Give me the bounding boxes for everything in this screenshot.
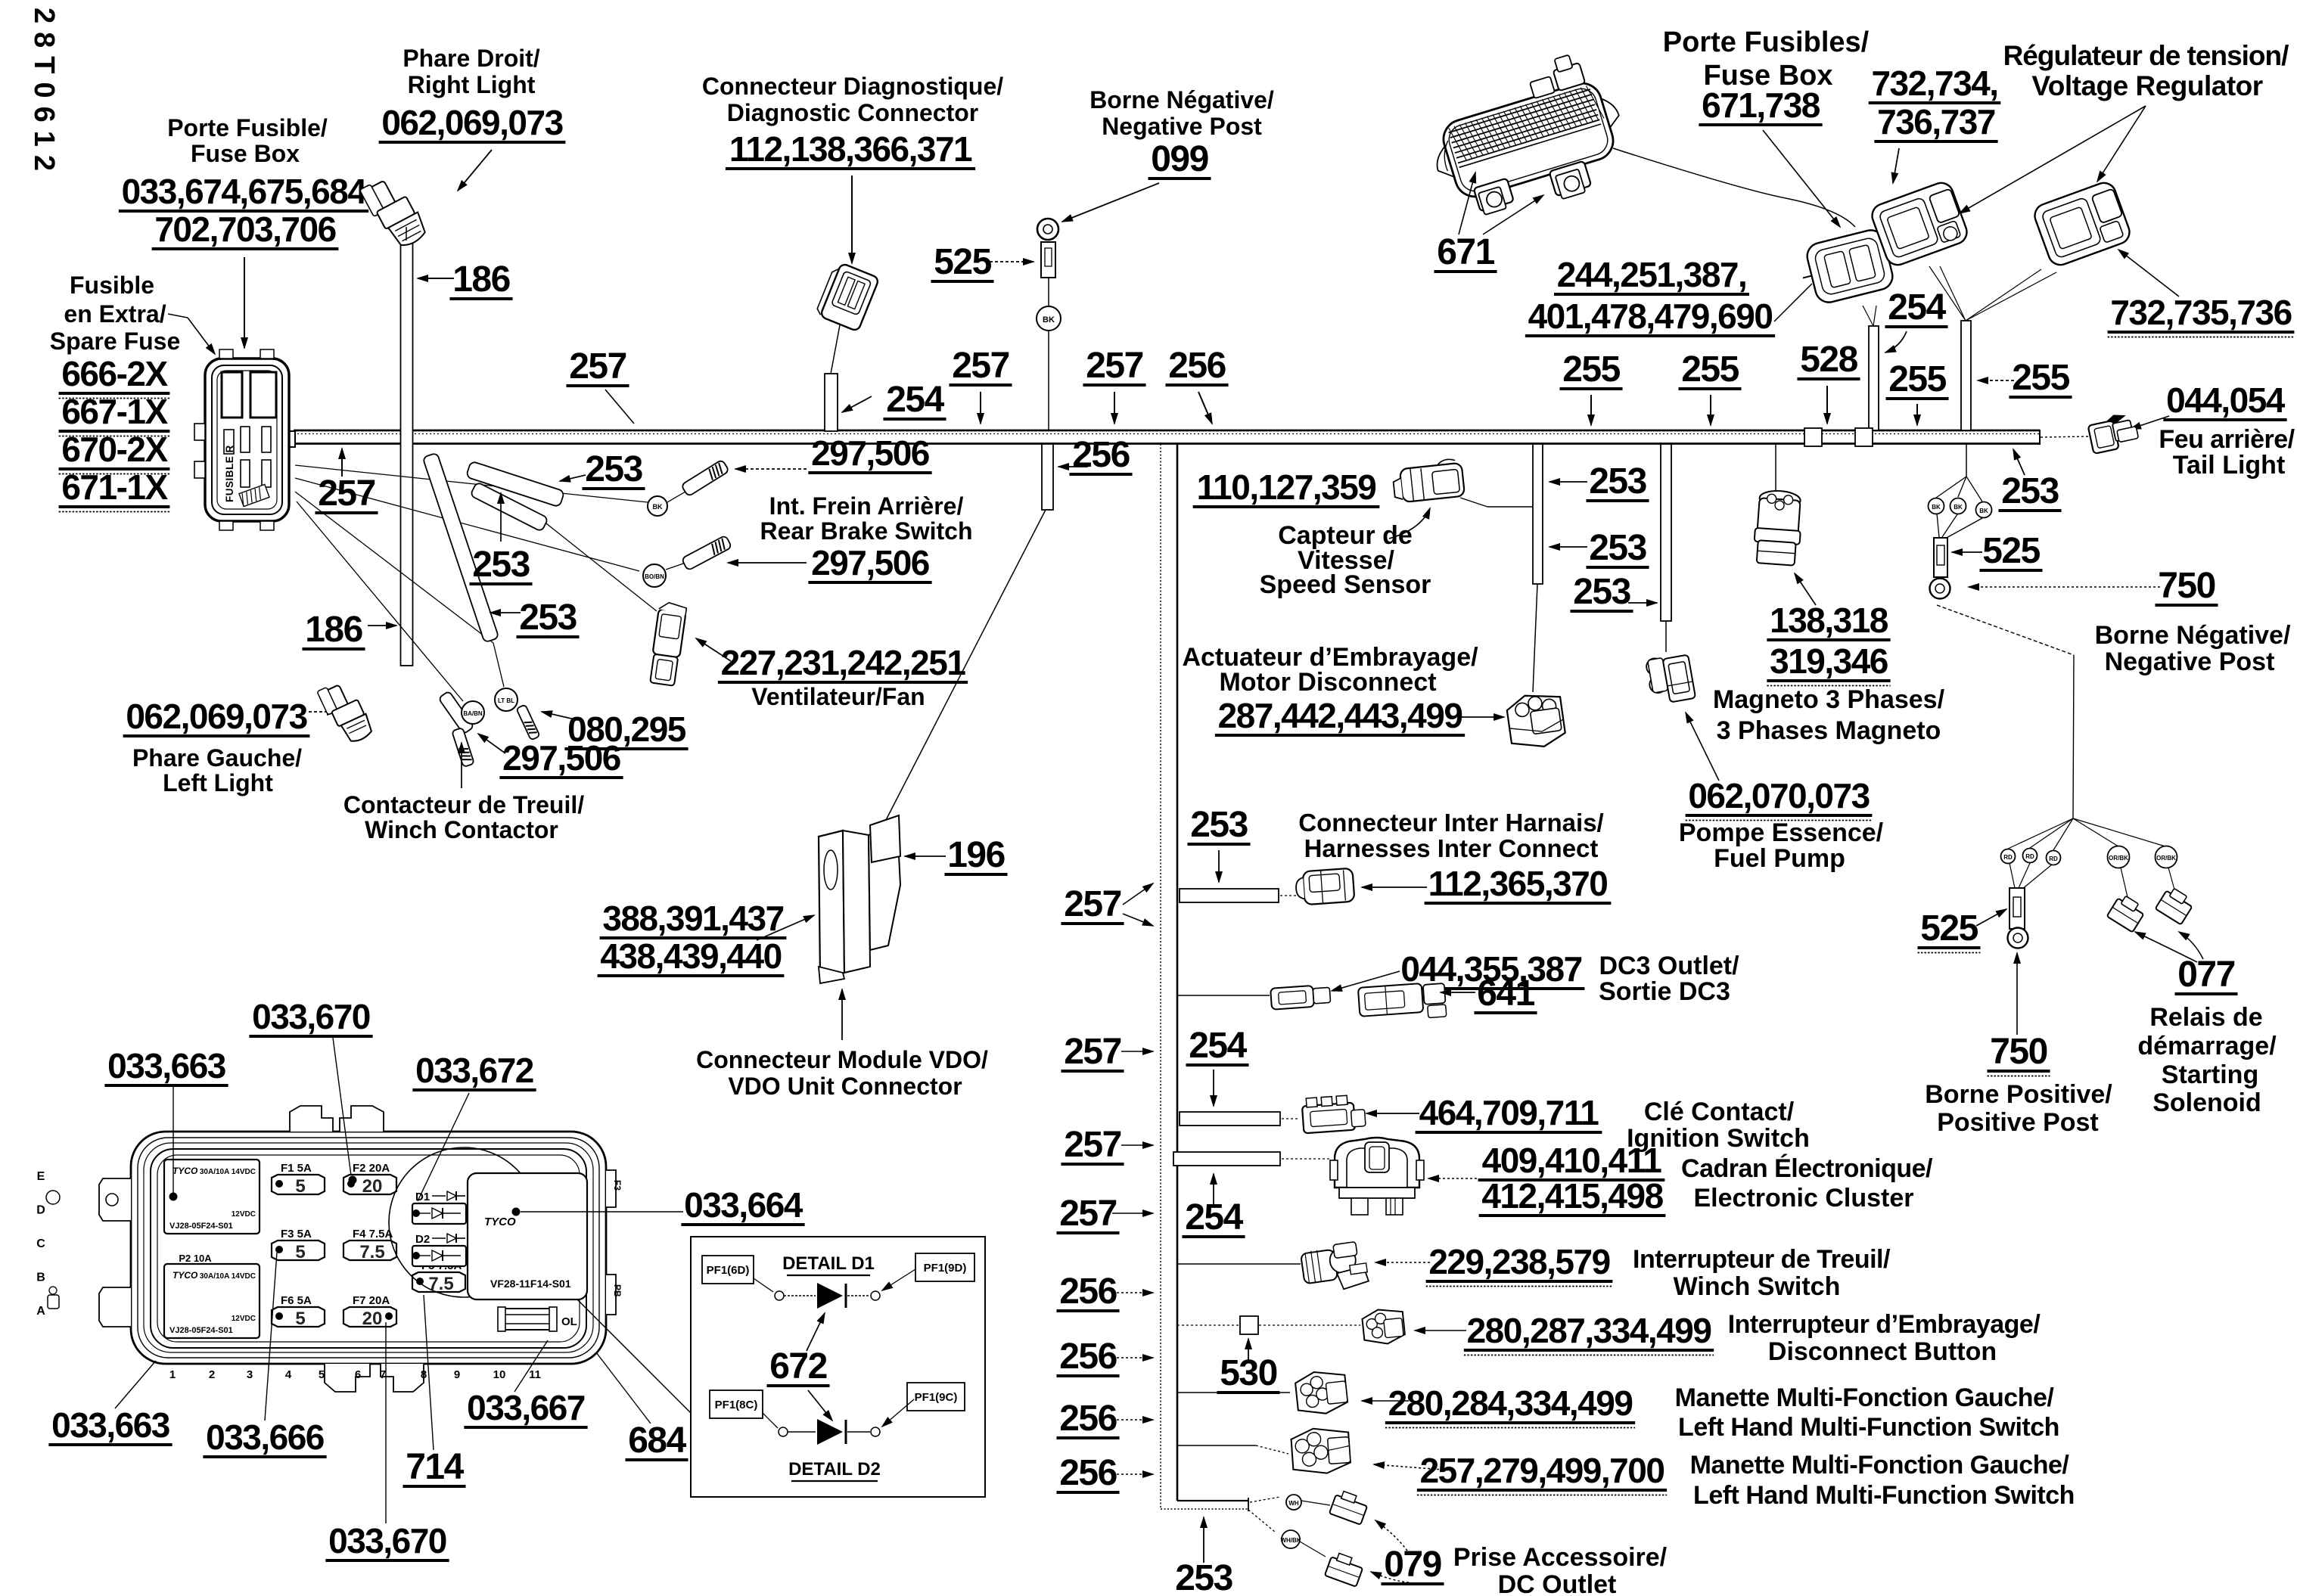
svg-text:BO/BN: BO/BN [645,573,664,580]
svg-text:VJ28-05F24-S01: VJ28-05F24-S01 [169,1326,233,1335]
svg-text:Ventilateur/Fan: Ventilateur/Fan [751,683,925,710]
svg-text:253: 253 [1190,805,1248,845]
svg-text:Clé Contact/: Clé Contact/ [1644,1098,1795,1126]
svg-text:D1: D1 [415,1191,430,1203]
svg-text:Régulateur de tension/: Régulateur de tension/ [2003,40,2289,71]
svg-text:254: 254 [886,380,944,420]
svg-text:229,238,579: 229,238,579 [1428,1242,1609,1281]
svg-text:641: 641 [1477,973,1534,1014]
svg-text:Manette Multi-Fonction Gauche/: Manette Multi-Fonction Gauche/ [1675,1383,2055,1412]
svg-text:033,666: 033,666 [206,1417,324,1457]
svg-text:Borne Négative/: Borne Négative/ [2095,621,2291,650]
svg-text:Manette Multi-Fonction Gauche/: Manette Multi-Fonction Gauche/ [1690,1451,2070,1480]
svg-text:033,663: 033,663 [51,1405,169,1445]
svg-text:253: 253 [472,545,530,585]
svg-text:VF28-11F14-S01: VF28-11F14-S01 [490,1278,571,1290]
svg-text:Borne Négative/: Borne Négative/ [1089,86,1274,113]
svg-text:297,506: 297,506 [502,738,620,778]
svg-text:OL: OL [561,1315,577,1328]
svg-text:Harnesses Inter Connect: Harnesses Inter Connect [1304,834,1599,862]
svg-text:7.5: 7.5 [428,1274,453,1294]
svg-text:671,738: 671,738 [1702,85,1820,125]
svg-text:Interrupteur de Treuil/: Interrupteur de Treuil/ [1633,1245,1891,1274]
svg-text:257: 257 [1059,1194,1117,1234]
svg-text:11: 11 [529,1368,541,1381]
svg-text:6: 6 [355,1368,361,1381]
svg-text:Negative Post: Negative Post [1102,113,1262,140]
svg-text:297,506: 297,506 [811,433,929,473]
svg-text:732,735,736: 732,735,736 [2110,293,2291,332]
svg-text:DC Outlet: DC Outlet [1498,1570,1617,1596]
svg-text:F6 5A: F6 5A [281,1294,312,1307]
svg-text:4: 4 [285,1368,292,1381]
svg-text:F7 20A: F7 20A [353,1294,390,1307]
svg-text:255: 255 [1681,349,1739,390]
svg-text:255: 255 [1562,349,1620,390]
svg-text:LT BL: LT BL [498,697,514,704]
svg-text:257: 257 [1064,1125,1121,1165]
svg-text:257: 257 [1064,1032,1121,1072]
svg-text:671-1X: 671-1X [61,467,168,507]
svg-text:Interrupteur d’Embrayage/: Interrupteur d’Embrayage/ [1728,1310,2041,1339]
svg-text:Left Hand Multi-Function Switc: Left Hand Multi-Function Switch [1693,1481,2075,1510]
svg-text:077: 077 [2177,955,2235,995]
svg-text:F2 20A: F2 20A [353,1162,390,1175]
svg-text:PF1(9D): PF1(9D) [924,1262,967,1275]
svg-text:9: 9 [454,1368,460,1381]
svg-text:DC3 Outlet/: DC3 Outlet/ [1599,952,1739,980]
svg-text:Speed Sensor: Speed Sensor [1260,570,1431,599]
svg-text:Phare Droit/: Phare Droit/ [403,45,539,72]
svg-text:F1 5A: F1 5A [281,1162,312,1175]
svg-text:TYCO: TYCO [173,1270,198,1281]
svg-text:B: B [36,1272,45,1284]
svg-text:253: 253 [585,449,642,489]
svg-text:412,415,498: 412,415,498 [1481,1176,1663,1216]
svg-text:Contacteur de Treuil/: Contacteur de Treuil/ [343,791,584,818]
svg-text:BK: BK [1954,504,1963,511]
svg-text:062,069,073: 062,069,073 [381,103,562,142]
svg-text:28T0612: 28T0612 [28,8,60,179]
svg-text:Negative Post: Negative Post [2105,647,2275,676]
svg-text:033,672: 033,672 [415,1051,533,1090]
svg-text:Connecteur Module VDO/: Connecteur Module VDO/ [696,1046,988,1073]
svg-text:F3 5A: F3 5A [281,1228,312,1240]
svg-text:PF1(8C): PF1(8C) [715,1399,758,1411]
svg-text:Motor Disconnect: Motor Disconnect [1219,668,1436,697]
svg-text:464,709,711: 464,709,711 [1419,1093,1599,1132]
svg-text:F3: F3 [612,1180,623,1191]
svg-text:667-1X: 667-1X [61,392,168,431]
svg-text:12VDC: 12VDC [232,1210,256,1219]
svg-text:750: 750 [2158,566,2215,606]
svg-text:D: D [36,1204,45,1217]
svg-text:186: 186 [452,259,510,300]
svg-text:099: 099 [1151,139,1208,179]
svg-text:BK: BK [1979,508,1988,514]
svg-text:257: 257 [1064,884,1121,924]
svg-text:Left Light: Left Light [163,769,273,796]
svg-text:525: 525 [934,242,991,282]
svg-text:253: 253 [1175,1558,1232,1596]
svg-text:297,506: 297,506 [811,543,929,582]
svg-text:OR/BK: OR/BK [2156,855,2176,862]
svg-text:257: 257 [1086,346,1143,386]
svg-text:280,287,334,499: 280,287,334,499 [1467,1311,1711,1350]
svg-text:Voltage Regulator: Voltage Regulator [2031,70,2262,101]
svg-text:5: 5 [295,1176,305,1197]
svg-text:079: 079 [1384,1545,1441,1585]
svg-text:DETAIL D2: DETAIL D2 [788,1459,881,1480]
svg-text:750: 750 [1990,1032,2047,1072]
svg-text:FUSIBLE R: FUSIBLE R [224,445,235,502]
svg-text:Solenoid: Solenoid [2152,1088,2261,1117]
svg-text:5: 5 [295,1309,305,1329]
svg-text:démarrage/: démarrage/ [2137,1032,2277,1060]
svg-text:PF1(6D): PF1(6D) [707,1264,750,1277]
svg-text:TYCO: TYCO [484,1216,516,1228]
svg-text:Magneto 3 Phases/: Magneto 3 Phases/ [1713,685,1945,714]
svg-text:en Extra/: en Extra/ [64,300,166,328]
svg-text:227,231,242,251: 227,231,242,251 [721,643,966,682]
svg-text:255: 255 [1888,359,1946,399]
svg-text:PF1(9C): PF1(9C) [915,1391,958,1404]
svg-text:Pompe Essence/: Pompe Essence/ [1679,818,1884,847]
svg-text:255: 255 [2012,358,2069,398]
svg-text:VJ28-05F24-S01: VJ28-05F24-S01 [169,1222,233,1231]
svg-text:525: 525 [1982,531,2040,571]
svg-text:20: 20 [362,1176,383,1197]
svg-text:525: 525 [1920,908,1978,949]
svg-text:044,054: 044,054 [2166,380,2286,420]
svg-text:033,664: 033,664 [684,1185,803,1225]
svg-text:Electronic Cluster: Electronic Cluster [1694,1184,1914,1213]
svg-text:BA/BN: BA/BN [463,710,483,717]
svg-text:736,737: 736,737 [1877,102,1995,141]
svg-text:VDO Unit Connector: VDO Unit Connector [728,1073,962,1100]
svg-text:BK: BK [653,503,663,511]
svg-text:257,279,499,700: 257,279,499,700 [1420,1451,1664,1490]
svg-text:438,439,440: 438,439,440 [600,936,781,976]
svg-text:Winch Contactor: Winch Contactor [365,816,558,843]
svg-text:256: 256 [1059,1453,1117,1493]
svg-text:254: 254 [1888,287,1946,328]
svg-text:Fuel Pump: Fuel Pump [1714,844,1845,873]
svg-text:280,284,334,499: 280,284,334,499 [1388,1383,1633,1423]
svg-text:714: 714 [406,1447,464,1487]
svg-text:Disconnect Button: Disconnect Button [1768,1337,1997,1366]
svg-text:DETAIL D1: DETAIL D1 [782,1253,875,1274]
svg-text:7: 7 [380,1368,386,1381]
svg-text:702,703,706: 702,703,706 [154,210,335,249]
svg-text:3 Phases Magneto: 3 Phases Magneto [1717,716,1941,745]
svg-text:033,670: 033,670 [328,1521,446,1560]
svg-text:Porte Fusible/: Porte Fusible/ [167,114,328,141]
svg-text:Left Hand Multi-Function Switc: Left Hand Multi-Function Switch [1678,1413,2059,1442]
svg-text:A: A [36,1305,45,1318]
svg-text:2: 2 [209,1368,215,1381]
svg-text:033,667: 033,667 [467,1388,585,1427]
svg-text:062,069,073: 062,069,073 [126,697,306,736]
svg-text:Fuse Box: Fuse Box [191,140,300,167]
svg-text:256: 256 [1059,1272,1117,1312]
svg-text:256: 256 [1072,435,1130,475]
svg-text:253: 253 [1589,528,1646,568]
svg-text:112,365,370: 112,365,370 [1428,864,1608,903]
svg-text:033,670: 033,670 [252,997,370,1036]
svg-text:033,674,675,684: 033,674,675,684 [122,172,368,211]
svg-text:257: 257 [318,474,375,514]
svg-text:Sortie DC3: Sortie DC3 [1599,977,1730,1006]
svg-text:Tail Light: Tail Light [2173,451,2286,480]
svg-text:Cadran Électronique/: Cadran Électronique/ [1681,1154,1933,1183]
svg-text:E: E [37,1170,45,1183]
svg-text:253: 253 [1573,572,1630,612]
svg-text:RD: RD [2049,855,2058,862]
svg-text:Right Light: Right Light [408,71,536,98]
svg-text:666-2X: 666-2X [61,354,168,393]
svg-text:388,391,437: 388,391,437 [602,899,783,938]
svg-text:110,127,359: 110,127,359 [1197,467,1376,507]
svg-text:PB: PB [612,1284,623,1297]
svg-text:BK: BK [1932,504,1941,511]
svg-text:20: 20 [362,1309,383,1329]
svg-text:10: 10 [493,1368,506,1381]
svg-text:30A/10A 14VDC: 30A/10A 14VDC [200,1272,256,1281]
svg-text:401,478,479,690: 401,478,479,690 [1528,297,1773,336]
svg-text:253: 253 [2001,471,2059,511]
svg-text:Phare Gauche/: Phare Gauche/ [132,744,302,772]
svg-text:196: 196 [947,835,1005,875]
svg-text:257: 257 [569,346,626,387]
svg-text:Positive Post: Positive Post [1937,1108,2099,1137]
svg-text:Starting: Starting [2162,1060,2258,1089]
svg-text:Rear Brake Switch: Rear Brake Switch [760,517,972,545]
svg-text:253: 253 [1589,461,1646,501]
svg-text:RD: RD [2025,853,2034,860]
svg-text:8: 8 [421,1368,427,1381]
svg-text:528: 528 [1800,340,1857,380]
svg-text:256: 256 [1059,1337,1117,1377]
svg-text:D2: D2 [415,1233,430,1246]
svg-text:BK: BK [1043,315,1055,324]
svg-text:5: 5 [319,1368,325,1381]
svg-text:12VDC: 12VDC [232,1315,256,1323]
svg-text:Diagnostic Connector: Diagnostic Connector [727,99,978,126]
svg-text:7.5: 7.5 [359,1242,384,1262]
svg-text:684: 684 [628,1421,686,1461]
svg-text:Connecteur Diagnostique/: Connecteur Diagnostique/ [702,73,1003,100]
svg-text:409,410,411: 409,410,411 [1482,1141,1662,1180]
svg-text:Relais de: Relais de [2149,1003,2262,1032]
svg-text:Borne Positive/: Borne Positive/ [1925,1080,2112,1109]
svg-text:Porte Fusibles/: Porte Fusibles/ [1663,26,1870,58]
svg-text:Int. Frein Arrière/: Int. Frein Arrière/ [769,492,964,520]
svg-text:WH: WH [1288,1500,1299,1507]
svg-text:Prise Accessoire/: Prise Accessoire/ [1453,1543,1668,1572]
svg-text:287,442,443,499: 287,442,443,499 [1218,696,1462,735]
svg-text:RD: RD [2003,854,2013,861]
svg-text:244,251,387,: 244,251,387, [1557,255,1747,294]
svg-text:671: 671 [1437,232,1494,272]
svg-text:254: 254 [1189,1026,1247,1066]
svg-text:670-2X: 670-2X [61,430,168,469]
svg-text:C: C [36,1237,45,1250]
svg-text:033,663: 033,663 [107,1046,225,1085]
svg-text:672: 672 [769,1346,827,1386]
svg-text:5: 5 [295,1242,305,1262]
svg-text:3: 3 [247,1368,253,1381]
svg-text:138,318: 138,318 [1770,601,1888,640]
svg-text:Feu arrière/: Feu arrière/ [2159,425,2295,454]
svg-text:256: 256 [1168,346,1226,386]
svg-text:Spare Fuse: Spare Fuse [50,328,181,355]
svg-text:F4 7.5A: F4 7.5A [353,1228,393,1240]
svg-text:P2 10A: P2 10A [179,1253,212,1264]
svg-text:256: 256 [1059,1399,1117,1439]
svg-text:Connecteur Inter Harnais/: Connecteur Inter Harnais/ [1298,809,1603,837]
svg-text:30A/10A 14VDC: 30A/10A 14VDC [200,1168,256,1176]
svg-text:319,346: 319,346 [1770,641,1888,681]
svg-text:062,070,073: 062,070,073 [1688,776,1869,815]
svg-text:257: 257 [952,346,1009,386]
svg-text:186: 186 [305,610,362,650]
svg-text:1: 1 [169,1368,176,1381]
svg-text:Fusible: Fusible [70,272,154,299]
svg-text:Winch Switch: Winch Switch [1674,1272,1841,1301]
svg-text:WH/BK: WH/BK [1280,1537,1301,1544]
svg-text:112,138,366,371: 112,138,366,371 [729,129,972,169]
svg-text:732,734,: 732,734, [1871,64,1997,103]
svg-text:OR/BK: OR/BK [2109,855,2128,862]
svg-text:TYCO: TYCO [173,1166,198,1176]
svg-text:253: 253 [519,598,577,638]
